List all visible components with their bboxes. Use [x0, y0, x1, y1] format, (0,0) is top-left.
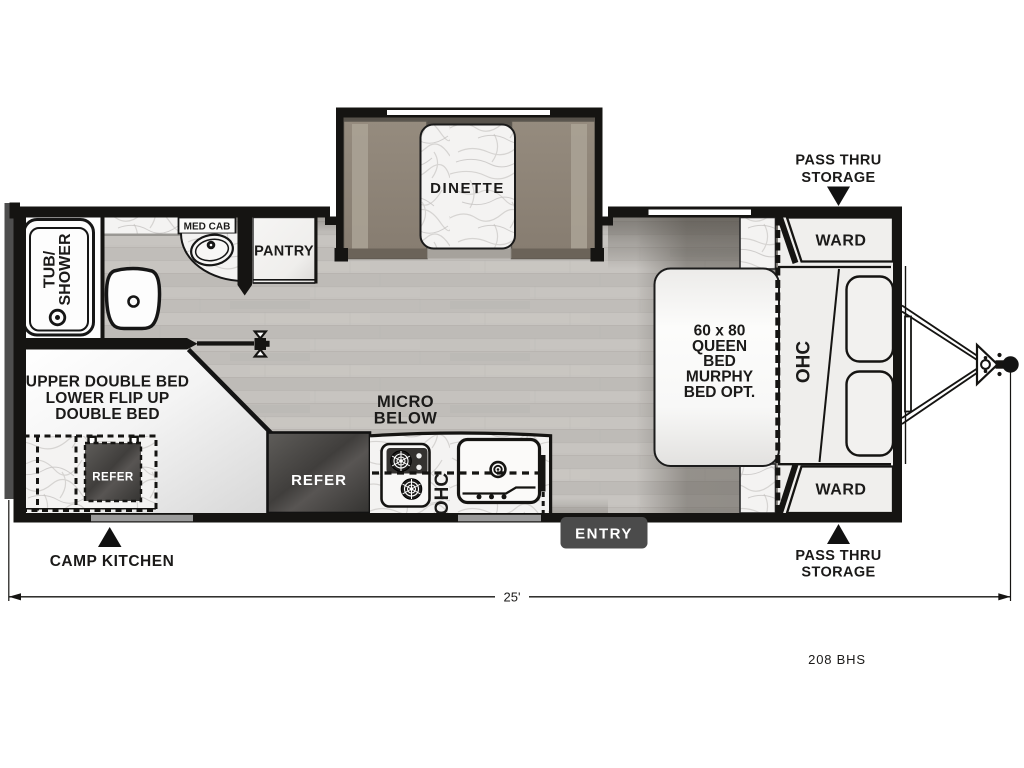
svg-text:REFER: REFER	[92, 472, 134, 484]
svg-text:PASS THRU: PASS THRU	[795, 548, 881, 564]
svg-text:OHC: OHC	[794, 341, 815, 384]
svg-text:WARD: WARD	[816, 232, 867, 249]
svg-text:WARD: WARD	[816, 482, 867, 499]
svg-text:208 BHS: 208 BHS	[808, 652, 866, 667]
svg-text:REFER: REFER	[291, 472, 347, 489]
svg-text:25': 25'	[504, 589, 521, 604]
svg-text:PASS THRU: PASS THRU	[795, 153, 881, 169]
svg-text:STORAGE: STORAGE	[801, 170, 875, 186]
svg-text:UPPER DOUBLE BED: UPPER DOUBLE BED	[26, 374, 189, 391]
svg-text:OHC: OHC	[432, 473, 453, 516]
svg-text:BED OPT.: BED OPT.	[684, 384, 755, 401]
svg-text:STORAGE: STORAGE	[801, 565, 875, 581]
svg-text:BELOW: BELOW	[374, 410, 437, 428]
svg-text:DINETTE: DINETTE	[430, 180, 505, 197]
svg-text:LOWER FLIP UP: LOWER FLIP UP	[46, 390, 170, 407]
svg-text:CAMP KITCHEN: CAMP KITCHEN	[50, 553, 175, 570]
svg-text:PANTRY: PANTRY	[254, 243, 314, 259]
svg-text:DOUBLE BED: DOUBLE BED	[55, 406, 159, 423]
svg-text:ENTRY: ENTRY	[575, 525, 633, 542]
svg-text:MED CAB: MED CAB	[184, 222, 231, 233]
svg-text:MICRO: MICRO	[377, 393, 434, 411]
